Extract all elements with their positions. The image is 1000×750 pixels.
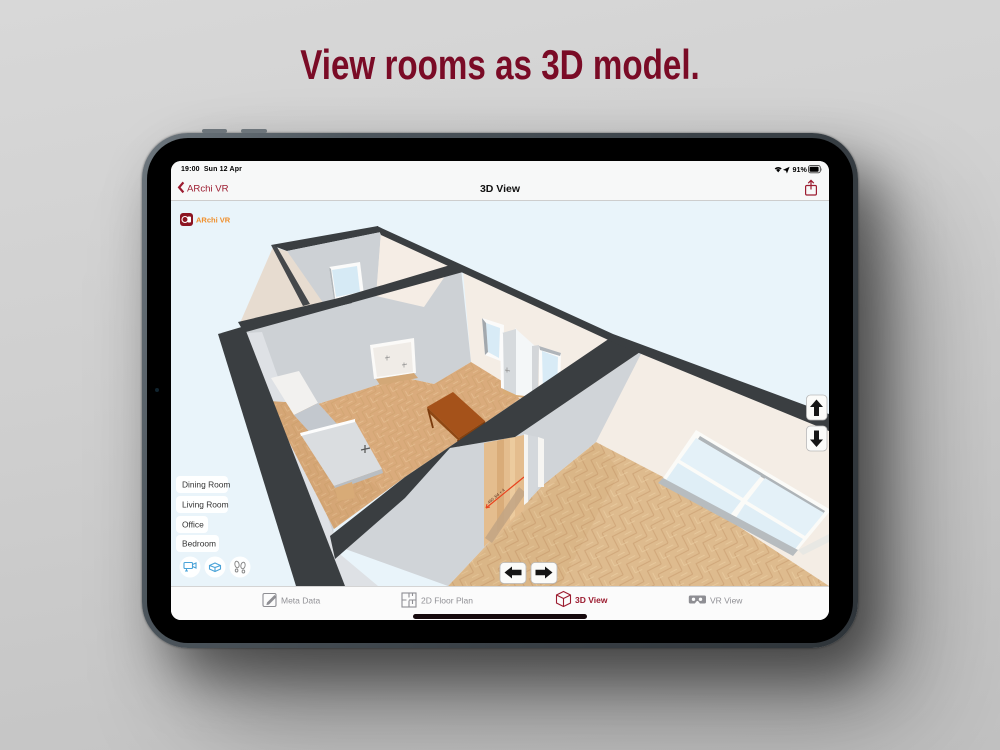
svg-text:Office: Office — [182, 520, 204, 530]
svg-text:3D View: 3D View — [575, 595, 608, 605]
svg-text:91%: 91% — [793, 165, 808, 174]
svg-text:Bedroom: Bedroom — [182, 539, 216, 549]
svg-text:Dining Room: Dining Room — [182, 480, 230, 490]
svg-text:Meta Data: Meta Data — [281, 596, 320, 606]
svg-text:VR View: VR View — [710, 596, 743, 606]
svg-text:ARchi VR: ARchi VR — [196, 216, 231, 225]
svg-text:2D Floor Plan: 2D Floor Plan — [421, 596, 473, 606]
svg-text:Living Room: Living Room — [182, 500, 229, 510]
